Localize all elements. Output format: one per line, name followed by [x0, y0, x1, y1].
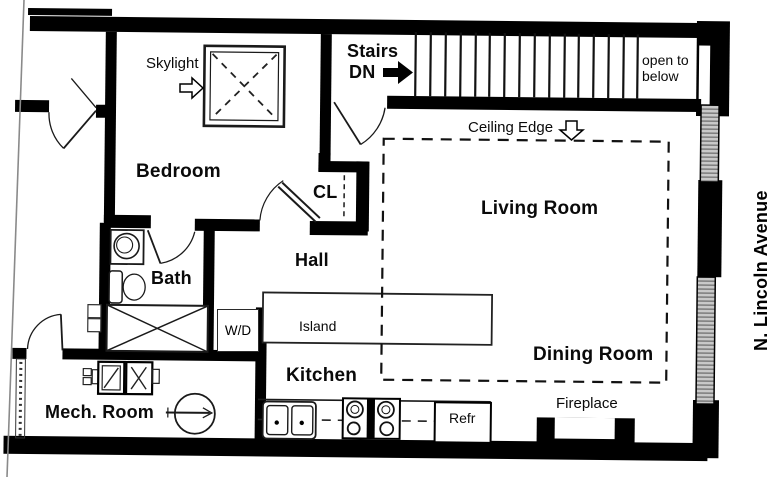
- shelf-icon: [88, 305, 101, 318]
- valve-icon: [83, 378, 91, 385]
- stove-icon: [343, 398, 400, 439]
- open-to-below-label: open to below: [642, 52, 700, 84]
- dining-room-label: Dining Room: [533, 344, 653, 366]
- skylight-icon: [204, 46, 285, 127]
- valve-icon: [83, 369, 91, 376]
- bedroom-label: Bedroom: [136, 161, 221, 183]
- closet-south-wall: [310, 221, 368, 236]
- door-swing-icon: [49, 78, 97, 148]
- shelf-icon: [88, 319, 101, 332]
- tub-icon: [106, 305, 207, 352]
- top-wall-sliver: [28, 8, 112, 16]
- door-swing-icon: [147, 230, 194, 263]
- entry-wall-stub: [15, 100, 49, 112]
- bath-sink-icon: [110, 230, 143, 264]
- living-room-label: Living Room: [481, 198, 598, 220]
- mech-wall-stub: [12, 348, 26, 359]
- washer-dryer-box: W/D: [217, 309, 259, 352]
- hall-label: Hall: [295, 250, 329, 271]
- floor-plan-page: W/D Skylight Bedroom Stairs DN open to b…: [0, 0, 777, 477]
- street-name-label: N. Lincoln Avenue: [751, 190, 772, 351]
- window-icon: [696, 277, 715, 404]
- top-wall: [30, 16, 700, 38]
- stair-treads-icon: [415, 32, 638, 98]
- bedroom-west-wall: [104, 32, 117, 222]
- fireplace-icon: [536, 417, 634, 450]
- skylight-label: Skylight: [146, 55, 199, 72]
- bath-label: Bath: [151, 268, 192, 289]
- door-jamb-stub: [96, 105, 106, 118]
- window-icon: [700, 105, 719, 182]
- water-heater-icon: [166, 393, 215, 434]
- right-wall-mid: [697, 180, 722, 277]
- refrigerator-label: Refr: [449, 410, 475, 426]
- stairs-label-line2: DN: [349, 62, 375, 83]
- island-label: Island: [299, 318, 336, 334]
- closet-label: CL: [313, 182, 337, 203]
- ceiling-edge-label: Ceiling Edge: [468, 119, 553, 136]
- fireplace-label: Fireplace: [556, 395, 618, 412]
- mech-west-wall: [16, 359, 26, 438]
- washer-dryer-label: W/D: [225, 323, 251, 338]
- stairs-bottom-wall: [387, 96, 701, 112]
- door-swing-icon: [334, 102, 385, 145]
- toilet-icon: [109, 271, 145, 303]
- mech-room-label: Mech. Room: [45, 402, 154, 423]
- door-swing-icon: [28, 314, 63, 350]
- kitchen-island: [263, 292, 493, 344]
- closet-door-icon: [260, 180, 320, 222]
- mech-equipment: [83, 362, 216, 434]
- furnace-icon: [98, 362, 124, 394]
- kitchen-sink-icon: [263, 401, 316, 439]
- stairs-label-line1: Stairs: [347, 41, 398, 62]
- furnace-icon: [126, 362, 152, 394]
- bedroom-south-wall-a: [104, 215, 151, 228]
- bedroom-east-wall: [320, 34, 332, 155]
- kitchen-label: Kitchen: [286, 365, 357, 387]
- closet-east-wall: [356, 161, 370, 231]
